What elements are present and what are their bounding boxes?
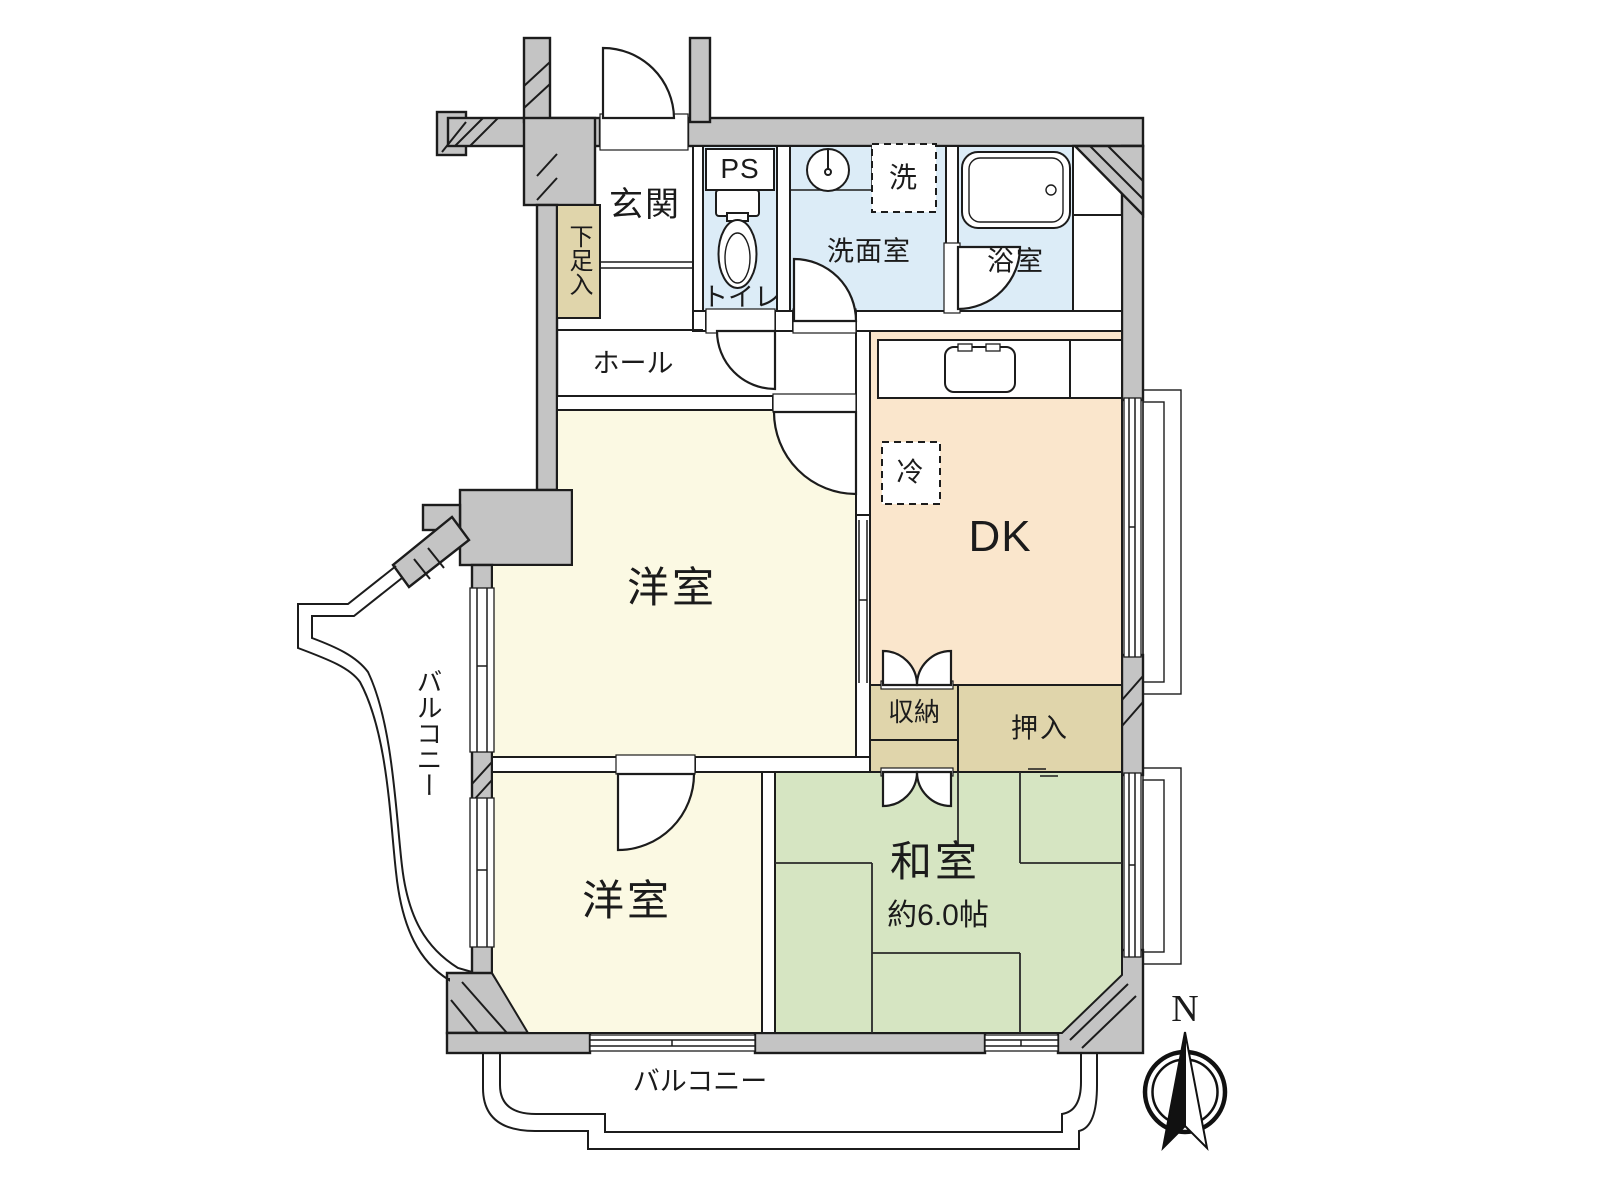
shoe-cabinet-label: 下足入 <box>566 224 590 296</box>
washroom-label: 洗面室 <box>827 239 911 266</box>
toilet-door <box>717 331 775 389</box>
balcony-left-rail <box>298 566 472 980</box>
storage-label: 収納 <box>888 699 940 725</box>
north-arrow-icon <box>1145 1032 1225 1148</box>
genkan-label: 玄関 <box>609 188 681 222</box>
bay-window-dk <box>1143 390 1181 694</box>
storage-box-lower <box>870 740 958 772</box>
bay-window-washitsu <box>1143 768 1181 964</box>
fridge-label: 冷 <box>897 460 926 487</box>
washitsu-size-label: 約6.0帖 <box>887 901 989 931</box>
ps-label: PS <box>720 155 759 183</box>
bathroom-label: 浴室 <box>987 249 1045 276</box>
floor-plan-drawing <box>0 0 1600 1200</box>
kitchen-sink-icon <box>878 340 1122 398</box>
floor-plan: 玄関 下足入 PS トイレ 洗面室 洗 浴室 ホール DK 冷 洋室 収納 押入… <box>0 0 1600 1200</box>
western2-label: 洋室 <box>582 880 672 922</box>
western1-label: 洋室 <box>627 567 717 609</box>
entrance-door <box>603 48 674 118</box>
bathtub-icon <box>962 152 1070 228</box>
hall-label: ホール <box>593 351 674 378</box>
balcony-bottom-rail <box>483 1053 1097 1149</box>
washbasin-icon <box>807 149 849 191</box>
dk-label: DK <box>968 515 1031 559</box>
toilet-icon <box>716 190 759 288</box>
toilet-label: トイレ <box>702 284 780 310</box>
balcony-left-label: バルコニー <box>415 668 441 798</box>
compass-north-label: N <box>1171 990 1198 1028</box>
laundry-label: 洗 <box>889 164 919 192</box>
balcony-bottom-label: バルコニー <box>633 1069 767 1096</box>
oshiire-label: 押入 <box>1011 716 1069 743</box>
washitsu-label: 和室 <box>890 841 980 883</box>
void-space <box>1073 215 1122 313</box>
